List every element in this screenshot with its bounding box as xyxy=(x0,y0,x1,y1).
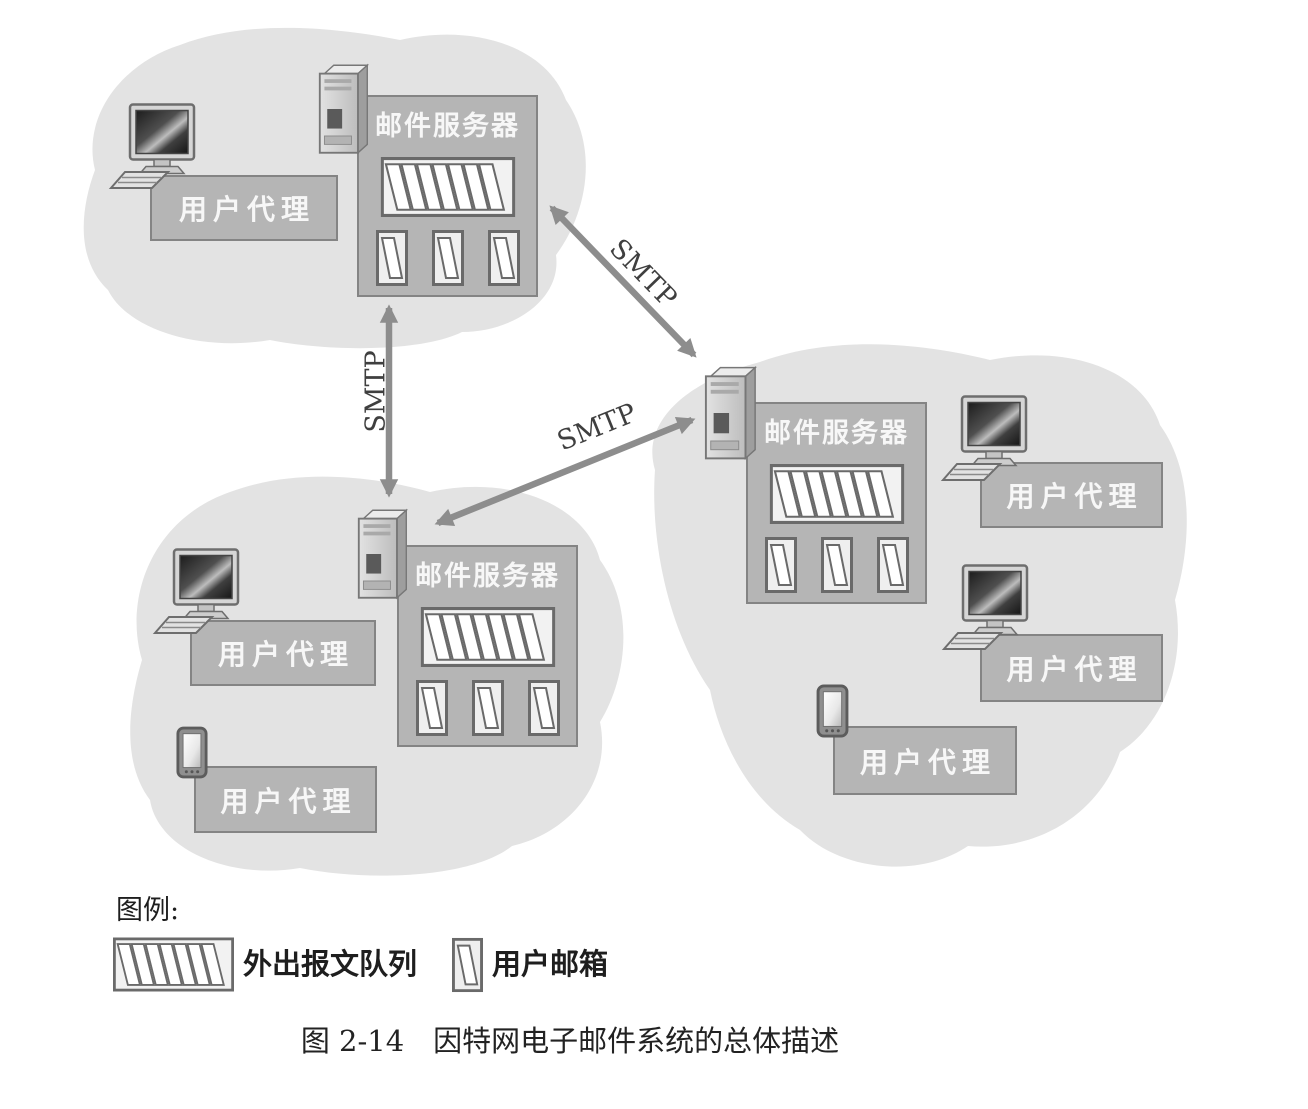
mailbox-icon xyxy=(432,230,464,286)
computer-icon xyxy=(108,103,200,193)
mailbox-icon xyxy=(528,680,560,736)
server-icon xyxy=(356,505,410,603)
legend-mailbox-label: 用户邮箱 xyxy=(492,941,608,983)
mail-server-box: 邮件服务器 xyxy=(746,402,927,604)
mailbox-row xyxy=(376,230,520,286)
computer-icon xyxy=(152,548,244,638)
mailbox-row xyxy=(416,680,560,736)
mailbox-icon xyxy=(765,537,797,593)
outgoing-queue-icon xyxy=(420,607,556,667)
mailbox-row xyxy=(765,537,909,593)
outgoing-queue-icon xyxy=(380,157,516,217)
legend-mailbox-icon xyxy=(452,937,483,993)
mailbox-icon xyxy=(376,230,408,286)
mail-server-label: 邮件服务器 xyxy=(375,104,520,143)
user-agent-label: 用户代理 xyxy=(173,188,315,228)
user-agent-label: 用户代理 xyxy=(212,633,354,673)
figure-caption: 图 2-14 因特网电子邮件系统的总体描述 xyxy=(260,1018,880,1060)
user-agent-box: 用户代理 xyxy=(194,766,377,833)
legend-outgoing-queue-label: 外出报文队列 xyxy=(243,941,417,983)
mail-server-label: 邮件服务器 xyxy=(415,554,560,593)
legend-outgoing-queue-icon xyxy=(113,936,234,993)
figure-email-system: 用户代理 邮件服务器 用户代理 用户代理 邮件服务器 邮件服务器 xyxy=(0,0,1308,1109)
server-icon xyxy=(317,60,371,158)
user-agent-box: 用户代理 xyxy=(833,726,1017,795)
mailbox-icon xyxy=(472,680,504,736)
mail-server-label: 邮件服务器 xyxy=(764,411,909,450)
mailbox-icon xyxy=(416,680,448,736)
user-agent-label: 用户代理 xyxy=(854,741,996,781)
mailbox-icon xyxy=(877,537,909,593)
computer-icon xyxy=(940,395,1032,485)
outgoing-queue-icon xyxy=(769,464,905,524)
mailbox-icon xyxy=(488,230,520,286)
legend-title: 图例: xyxy=(116,888,179,927)
computer-icon xyxy=(941,564,1033,654)
phone-icon xyxy=(816,684,849,738)
user-agent-label: 用户代理 xyxy=(1000,648,1142,688)
user-agent-label: 用户代理 xyxy=(214,780,356,820)
server-icon xyxy=(703,363,759,463)
phone-icon xyxy=(176,726,208,779)
smtp-label: SMTP xyxy=(361,337,392,447)
mail-server-box: 邮件服务器 xyxy=(397,545,578,747)
mail-server-box: 邮件服务器 xyxy=(357,95,538,297)
mailbox-icon xyxy=(821,537,853,593)
